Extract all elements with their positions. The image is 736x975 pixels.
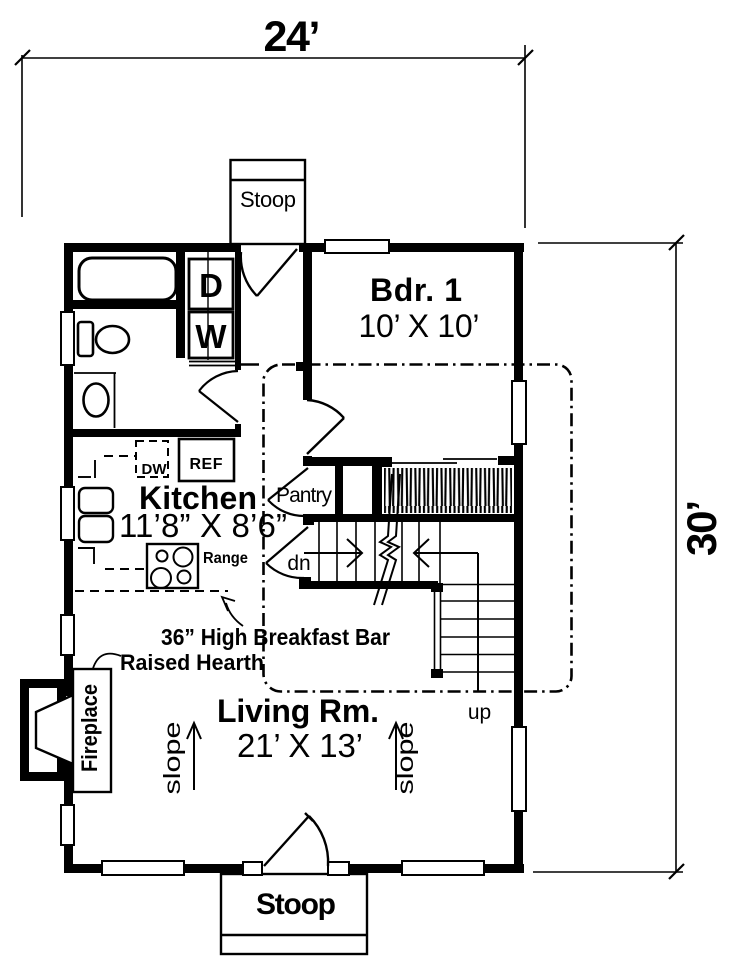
- svg-text:slope: slope: [392, 722, 418, 795]
- svg-text:24’: 24’: [264, 13, 321, 61]
- svg-text:Fireplace: Fireplace: [77, 684, 102, 772]
- svg-text:Bdr. 1: Bdr. 1: [370, 272, 462, 308]
- svg-text:W: W: [195, 318, 227, 355]
- svg-text:36” High Breakfast Bar: 36” High Breakfast Bar: [161, 624, 390, 650]
- svg-text:Living Rm.: Living Rm.: [217, 693, 379, 729]
- svg-text:REF: REF: [190, 456, 223, 473]
- svg-text:D: D: [199, 267, 223, 304]
- svg-text:30’: 30’: [678, 500, 725, 556]
- svg-text:slope: slope: [159, 722, 185, 795]
- svg-text:Raised Hearth: Raised Hearth: [120, 650, 264, 675]
- svg-text:11’8” X 8’6”: 11’8” X 8’6”: [119, 507, 287, 544]
- svg-text:Pantry: Pantry: [276, 484, 333, 507]
- svg-text:Stoop: Stoop: [240, 187, 296, 212]
- svg-text:Range: Range: [203, 550, 248, 567]
- svg-text:Stoop: Stoop: [256, 888, 336, 921]
- svg-text:dn: dn: [287, 552, 310, 575]
- svg-text:10’ X 10’: 10’ X 10’: [359, 308, 480, 344]
- svg-text:up: up: [468, 701, 491, 724]
- svg-text:21’ X 13’: 21’ X 13’: [237, 727, 363, 764]
- svg-text:DW: DW: [142, 461, 168, 478]
